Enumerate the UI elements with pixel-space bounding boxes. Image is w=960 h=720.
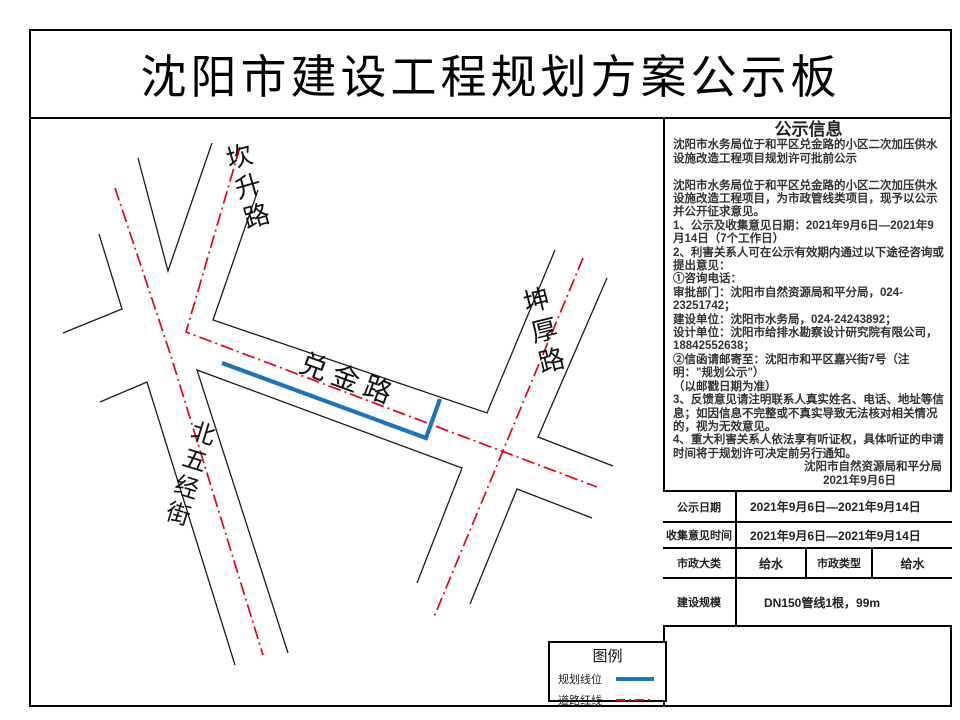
- info-paragraph: 建设单位：沈阳市水务局，024-24243892；: [673, 314, 944, 327]
- row-value: 2021年9月6日—2021年9月14日: [737, 492, 952, 521]
- road-redline-sample: [616, 699, 654, 701]
- row-label: 收集意见时间: [663, 523, 737, 547]
- table-row-publicity-date: 公示日期 2021年9月6日—2021年9月14日: [663, 492, 952, 523]
- info-paragraph: 设计单位：沈阳市给排水勘察设计研究院有限公司，18842552638；: [673, 327, 944, 354]
- info-paragraph: 沈阳市水务局位于和平区兑金路的小区二次加压供水设施改造工程项目规划许可批前公示: [673, 139, 944, 166]
- info-paragraph: 审批部门：沈阳市自然资源局和平分局，024-23251742；: [673, 287, 944, 314]
- info-paragraph: 4、重大利害关系人依法享有听证权，具体听证的申请时间将于规划许可决定前另行通知。: [673, 434, 944, 461]
- details-table: 公示日期 2021年9月6日—2021年9月14日 收集意见时间 2021年9月…: [663, 490, 952, 627]
- row-value: 2021年9月6日—2021年9月14日: [737, 523, 952, 547]
- table-row-municipal-category: 市政大类 给水 市政类型 给水: [663, 549, 952, 579]
- info-paragraph: 沈阳市水务局位于和平区兑金路的小区二次加压供水设施改造工程项目，为市政管线类项目…: [673, 180, 944, 220]
- row-value: 给水: [737, 549, 807, 577]
- row-value-2: 给水: [873, 549, 952, 577]
- signature-date: 2021年9月6日: [673, 475, 944, 488]
- info-paragraph: ①咨询电话：: [673, 273, 944, 286]
- publicity-board: 沈阳市建设工程规划方案公示板 坎升路 坤厚路 兑金路 北五经街 图例 规划线位: [0, 0, 960, 720]
- info-paragraph: 1、公示及收集意见日期：2021年9月6日—2021年9月14日（7个工作日）: [673, 220, 944, 247]
- legend-item-road-redline: 道路红线: [558, 692, 665, 708]
- row-value: DN150管线1根，99m: [737, 579, 952, 625]
- road-edge-kunhou-south-east: [470, 489, 592, 604]
- signature: 沈阳市自然资源局和平分局: [673, 461, 944, 474]
- table-row-construction-scale: 建设规模 DN150管线1根，99m: [663, 579, 952, 627]
- planning-line-sample: [616, 677, 654, 681]
- row-label: 公示日期: [663, 492, 737, 521]
- info-text: 公示信息 沈阳市水务局位于和平区兑金路的小区二次加压供水设施改造工程项目规划许可…: [665, 119, 952, 488]
- info-paragraph: （以邮戳日期为准）: [673, 381, 944, 394]
- info-paragraph: [673, 166, 944, 179]
- legend-item-planning-line: 规划线位: [558, 671, 665, 687]
- legend-label-road-redline: 道路红线: [558, 692, 610, 708]
- legend: 图例 规划线位 道路红线: [548, 641, 667, 702]
- row-label: 建设规模: [663, 579, 737, 625]
- info-paragraph: 2、利害关系人可在公示有效期内通过以下途径咨询或提出意见：: [673, 247, 944, 274]
- info-paragraph: 3、反馈意见请注明联系人真实姓名、电话、地址等信息；如因信息不完整或不真实导致无…: [673, 394, 944, 434]
- row-label-2: 市政类型: [807, 549, 873, 577]
- row-label: 市政大类: [663, 549, 737, 577]
- info-paragraph: ②信函请邮寄至：沈阳市和平区嘉兴街7号（注明："规划公示"）: [673, 354, 944, 381]
- road-edge-v-corner: [138, 143, 212, 271]
- legend-label-planning-line: 规划线位: [558, 671, 610, 687]
- legend-title: 图例: [550, 645, 665, 666]
- red-line-kunhou: [434, 258, 583, 617]
- table-row-feedback-period: 收集意见时间 2021年9月6日—2021年9月14日: [663, 523, 952, 549]
- road-edge-duijin-south: [197, 370, 462, 653]
- road-edge-beiwujing-west-upper: [63, 234, 122, 333]
- info-title: 公示信息: [673, 123, 944, 136]
